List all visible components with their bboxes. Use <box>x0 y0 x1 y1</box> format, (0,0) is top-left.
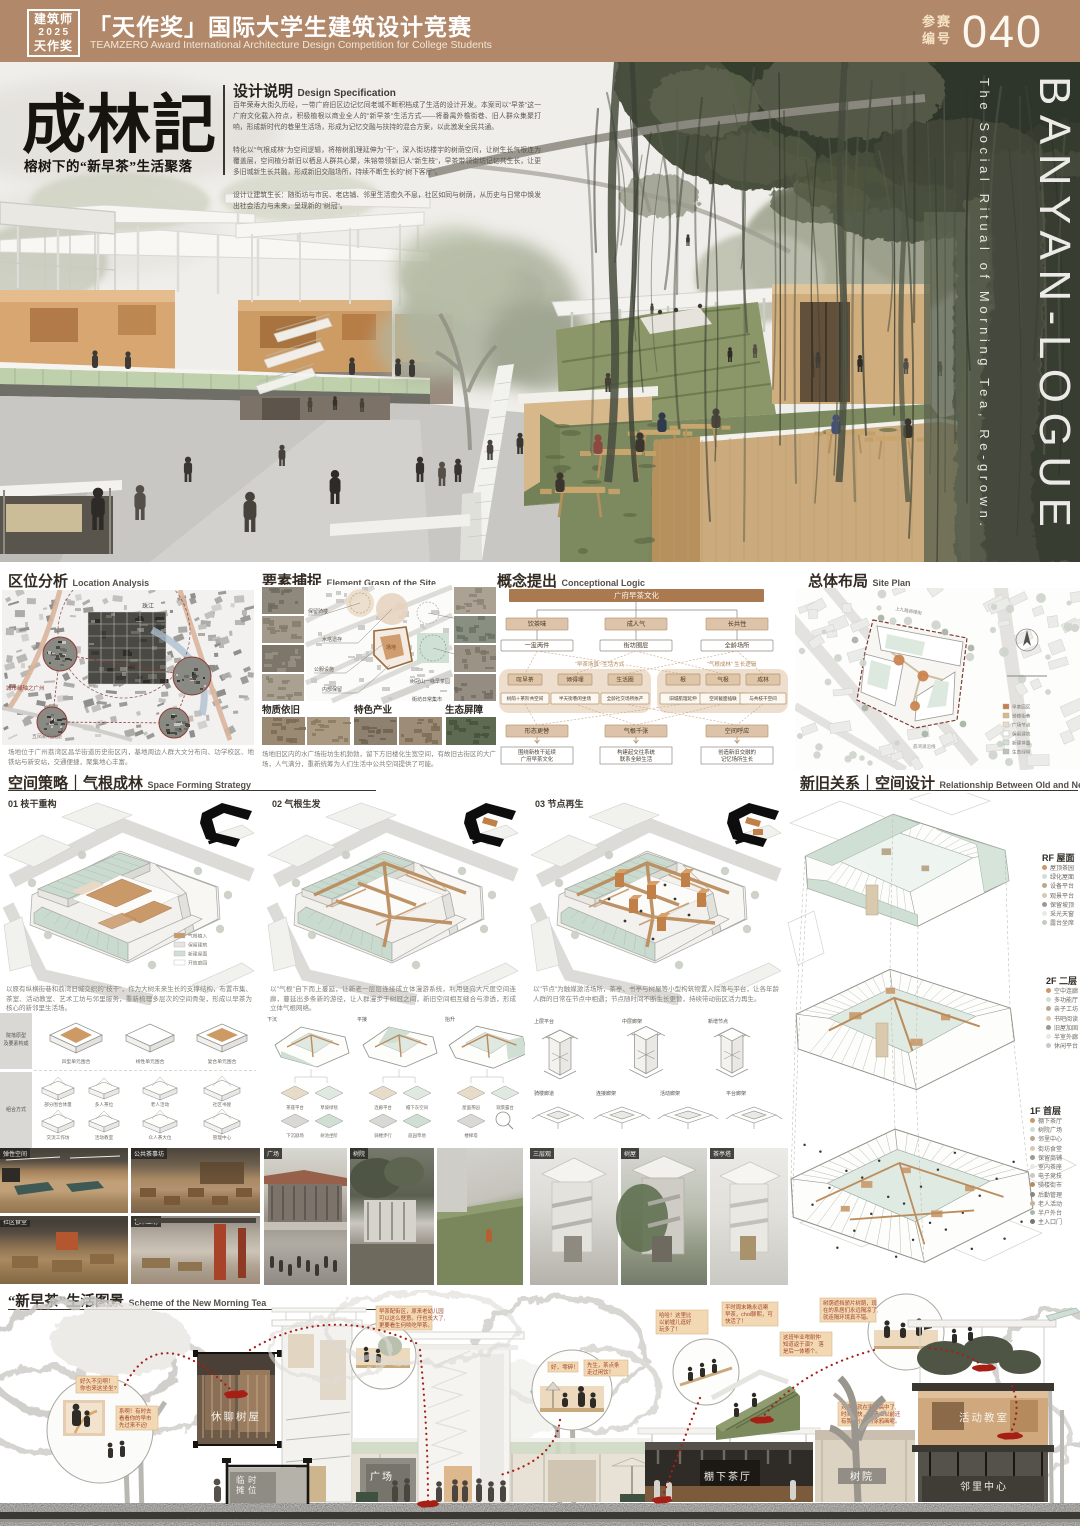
svg-text:气根千张: 气根千张 <box>624 727 650 735</box>
svg-text:“气根成林” 生长逻辑: “气根成林” 生长逻辑 <box>707 660 757 668</box>
svg-text:邻里中心: 邻里中心 <box>960 1480 1008 1493</box>
svg-text:树荫＋茶阶共空间: 树荫＋茶阶共空间 <box>507 695 544 702</box>
svg-text:新增节点: 新增节点 <box>708 1018 728 1025</box>
svg-text:更要看生何啖吃早茶。: 更要看生何啖吃早茶。 <box>379 1321 433 1329</box>
svg-text:下沉剧场: 下沉剧场 <box>286 1132 304 1139</box>
svg-text:骑楼廊道: 骑楼廊道 <box>534 1090 554 1097</box>
svg-text:茶座平台: 茶座平台 <box>286 1104 304 1111</box>
svg-text:半天街巷闲坐场: 半天街巷闲坐场 <box>559 695 592 702</box>
svg-text:物质依旧: 物质依旧 <box>262 704 300 716</box>
svg-text:平接: 平接 <box>357 1016 367 1023</box>
svg-text:先过来不迟!: 先过来不迟! <box>119 1421 148 1429</box>
svg-text:庭园草地: 庭园草地 <box>408 1132 426 1139</box>
svg-text:走过闲饮！: 走过闲饮！ <box>587 1368 614 1376</box>
svg-text:树荫遮挡骄片树荫，现: 树荫遮挡骄片树荫，现 <box>823 1299 878 1307</box>
svg-text:系啊！有时去: 系啊！有时去 <box>119 1407 152 1415</box>
svg-text:上层平台: 上层平台 <box>534 1018 554 1025</box>
svg-text:是后一体嘟个。: 是后一体嘟个。 <box>783 1347 821 1355</box>
svg-text:02 气根生发: 02 气根生发 <box>272 798 322 809</box>
svg-text:根: 根 <box>680 676 686 684</box>
svg-text:复合单元围合: 复合单元围合 <box>208 1058 237 1065</box>
svg-text:空间截面插联: 空间截面插联 <box>709 695 737 702</box>
svg-text:檐下灰空间: 檐下灰空间 <box>406 1104 428 1111</box>
svg-text:广府早茶文化: 广府早茶文化 <box>614 590 659 600</box>
svg-text:就连隔环境真不错。: 就连隔环境真不错。 <box>823 1313 872 1321</box>
svg-text:围绕新枝干延续: 围绕新枝干延续 <box>518 748 556 756</box>
svg-text:全龄社交场所依产: 全龄社交场所依产 <box>607 695 644 702</box>
svg-text:连廊平台: 连廊平台 <box>374 1104 392 1111</box>
svg-text:这班毕业咁耐仲: 这班毕业咁耐仲 <box>783 1333 821 1341</box>
svg-text:早茶园区: 早茶园区 <box>1012 704 1031 711</box>
svg-text:老人活动: 老人活动 <box>151 1101 170 1108</box>
svg-text:活动教室: 活动教室 <box>95 1134 114 1141</box>
svg-text:活动教室: 活动教室 <box>959 1411 1009 1424</box>
svg-text:与共枝干空间: 与共枝干空间 <box>749 695 777 702</box>
svg-text:饮茶味: 饮茶味 <box>528 620 547 628</box>
svg-text:街坊圈层: 街坊圈层 <box>624 642 649 650</box>
svg-text:连接廊架: 连接廊架 <box>596 1090 616 1097</box>
svg-text:场地: 场地 <box>386 644 396 651</box>
svg-text:社区书屋: 社区书屋 <box>213 1101 232 1108</box>
svg-text:众人茶大位: 众人茶大位 <box>149 1134 172 1141</box>
svg-text:生态绿带: 生态绿带 <box>1012 749 1031 756</box>
svg-text:荔湾涌沿线: 荔湾涌沿线 <box>913 743 936 750</box>
svg-text:及要素构成: 及要素构成 <box>3 1040 28 1047</box>
svg-text:街坊日常集市: 街坊日常集市 <box>412 696 442 703</box>
svg-text:01 枝干重构: 01 枝干重构 <box>8 798 57 809</box>
svg-text:一盅两件: 一盅两件 <box>525 642 550 650</box>
svg-text:倾得埋: 倾得埋 <box>566 676 584 684</box>
svg-text:凹型单元围合: 凹型单元围合 <box>62 1058 91 1065</box>
svg-text:内部保留: 内部保留 <box>322 686 342 693</box>
svg-text:气根: 气根 <box>717 676 729 684</box>
svg-text:水塔遗存: 水塔遗存 <box>322 636 342 643</box>
svg-text:公服设施: 公服设施 <box>314 666 334 673</box>
svg-text:开放庭园: 开放庭园 <box>188 960 207 967</box>
svg-text:广府早茶文化: 广府早茶文化 <box>521 755 554 763</box>
svg-text:早茶，choi聊熙，可: 早茶，choi聊熙，可 <box>725 1310 773 1318</box>
svg-text:记忆场所生长: 记忆场所生长 <box>721 755 754 763</box>
svg-text:骑楼街巷: 骑楼街巷 <box>1012 713 1031 720</box>
svg-text:院落原型: 院落原型 <box>6 1032 26 1039</box>
svg-text:特色产业: 特色产业 <box>354 704 393 716</box>
svg-text:摊: 摊 <box>236 1485 245 1495</box>
svg-text:城市绿轴之广州: 城市绿轴之广州 <box>6 684 45 692</box>
svg-text:广场: 广场 <box>370 1470 394 1483</box>
svg-text:树池坐阶: 树池坐阶 <box>320 1132 338 1139</box>
svg-text:活动廊架: 活动廊架 <box>660 1090 680 1097</box>
svg-text:创造新旧交融的: 创造新旧交融的 <box>718 748 756 756</box>
svg-text:03 节点再生: 03 节点再生 <box>535 798 584 809</box>
svg-text:休聊树屋: 休聊树屋 <box>211 1410 261 1423</box>
svg-text:中层廊架: 中层廊架 <box>622 1018 642 1025</box>
svg-text:新建屋面: 新建屋面 <box>188 951 207 958</box>
svg-text:交流工作坊: 交流工作坊 <box>47 1134 70 1141</box>
svg-text:先生，茶点条: 先生，茶点条 <box>587 1361 620 1369</box>
svg-text:玩多了！: 玩多了！ <box>659 1325 681 1333</box>
svg-text:生活圈: 生活圈 <box>616 676 634 684</box>
svg-text:全龄场所: 全龄场所 <box>725 642 750 650</box>
svg-text:平时周末瞅永远喇: 平时周末瞅永远喇 <box>725 1303 768 1311</box>
svg-text:气根植入: 气根植入 <box>188 933 207 940</box>
svg-text:生态屏障: 生态屏障 <box>445 704 484 716</box>
svg-text:看看你的早市: 看看你的早市 <box>119 1414 152 1422</box>
svg-text:保留骑楼: 保留骑楼 <box>308 608 328 615</box>
svg-text:屋面茶园: 屋面茶园 <box>462 1104 480 1111</box>
svg-text:棚下茶厅: 棚下茶厅 <box>704 1470 752 1483</box>
svg-text:部分围合体量: 部分围合体量 <box>44 1101 72 1108</box>
svg-text:可以这么惬意。仔也长大了,: 可以这么惬意。仔也长大了, <box>379 1314 446 1322</box>
svg-text:树院: 树院 <box>850 1470 874 1483</box>
svg-text:位: 位 <box>248 1485 257 1495</box>
svg-text:好，零碎！: 好，零碎！ <box>551 1363 579 1371</box>
svg-text:保留建筑: 保留建筑 <box>188 942 207 949</box>
svg-text:你也来这坐坐?: 你也来这坐坐? <box>80 1384 117 1392</box>
svg-text:成人气: 成人气 <box>627 620 646 628</box>
svg-text:抬升: 抬升 <box>445 1016 455 1023</box>
svg-text:时: 时 <box>248 1475 257 1485</box>
svg-text:快活了！: 快活了！ <box>725 1317 747 1325</box>
svg-text:旧城肌理延伸: 旧城肌理延伸 <box>669 695 697 702</box>
svg-text:形态更替: 形态更替 <box>525 727 550 735</box>
svg-text:空间呼应: 空间呼应 <box>725 727 750 735</box>
svg-text:多人茶位: 多人茶位 <box>95 1101 114 1108</box>
svg-text:广场节点: 广场节点 <box>1012 722 1031 729</box>
svg-text:长共性: 长共性 <box>728 620 747 628</box>
svg-text:BANYAN-LOGUE: BANYAN-LOGUE <box>1030 76 1079 536</box>
svg-text:管理中心: 管理中心 <box>213 1134 232 1141</box>
svg-text:联系全龄生活: 联系全龄生活 <box>620 755 653 763</box>
svg-text:构建起交往系统: 构建起交往系统 <box>617 748 655 756</box>
svg-text:叹早茶: 叹早茶 <box>516 676 534 684</box>
svg-text:哈哈！这里比: 哈哈！这里比 <box>659 1311 692 1319</box>
svg-text:成林: 成林 <box>757 676 769 684</box>
svg-text:早茶配街区，原来老幼儿园: 早茶配街区，原来老幼儿园 <box>379 1307 444 1315</box>
svg-text:好久不见啊！: 好久不见啊！ <box>80 1377 114 1385</box>
svg-text:下沉: 下沉 <box>267 1016 277 1023</box>
svg-text:楼梯塔: 楼梯塔 <box>464 1132 478 1139</box>
svg-text:新建体量: 新建体量 <box>1012 740 1031 747</box>
svg-text:树冠山一咏早茶园: 树冠山一咏早茶园 <box>410 678 450 685</box>
svg-text:知道返于演? 落: 知道返于演? 落 <box>783 1340 824 1348</box>
svg-text:珠江: 珠江 <box>142 602 154 610</box>
svg-text:观景露台: 观景露台 <box>496 1104 514 1111</box>
svg-text:“早茶场景” 生活方式: “早茶场景” 生活方式 <box>575 660 625 668</box>
svg-text:The Social Ritual of Morning T: The Social Ritual of Morning Tea, Re-gro… <box>977 78 992 531</box>
svg-text:草坡绿毯: 草坡绿毯 <box>320 1104 338 1111</box>
svg-text:临: 临 <box>236 1475 245 1485</box>
svg-text:保留建筑: 保留建筑 <box>1012 731 1031 738</box>
svg-text:线性单元围合: 线性单元围合 <box>136 1058 165 1065</box>
svg-text:在的系居们永远隔凉了,: 在的系居们永远隔凉了, <box>823 1306 879 1314</box>
svg-text:以前墟儿逛好: 以前墟儿逛好 <box>659 1318 692 1326</box>
svg-text:骑楼步行: 骑楼步行 <box>374 1132 392 1139</box>
svg-text:五凤新村大道: 五凤新村大道 <box>32 733 62 740</box>
svg-text:组合方式: 组合方式 <box>6 1106 26 1113</box>
svg-text:平台廊架: 平台廊架 <box>726 1090 746 1097</box>
